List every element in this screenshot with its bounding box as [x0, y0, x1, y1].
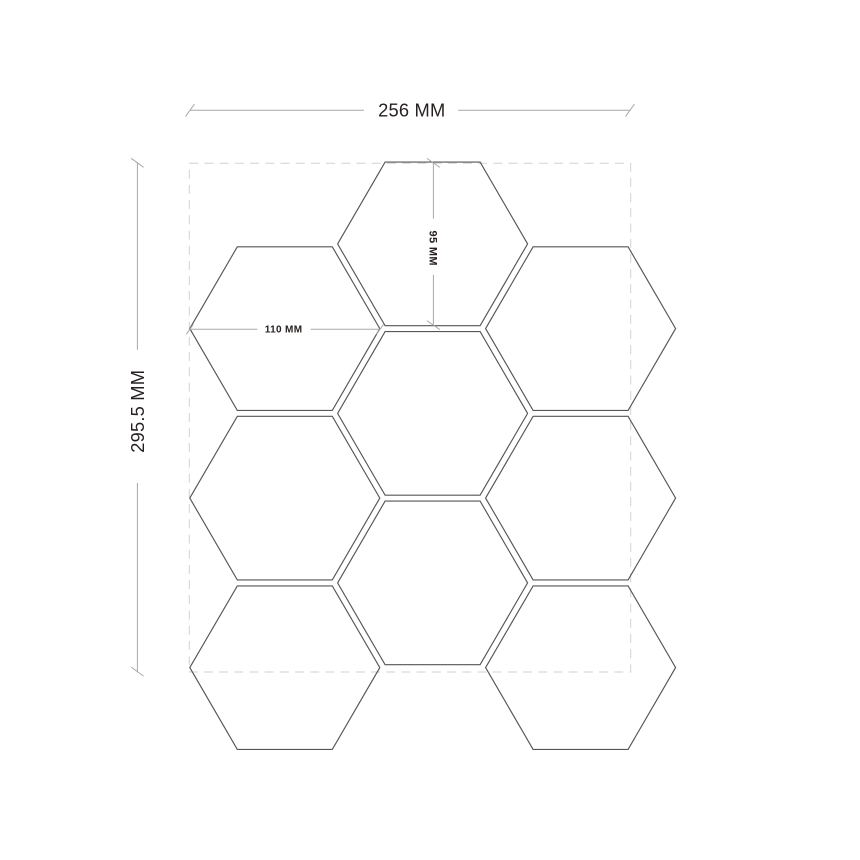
svg-text:295.5 MM: 295.5 MM [127, 370, 148, 453]
svg-text:95 MM: 95 MM [426, 231, 438, 266]
svg-text:256 MM: 256 MM [378, 99, 445, 120]
svg-text:110 MM: 110 MM [265, 325, 303, 336]
